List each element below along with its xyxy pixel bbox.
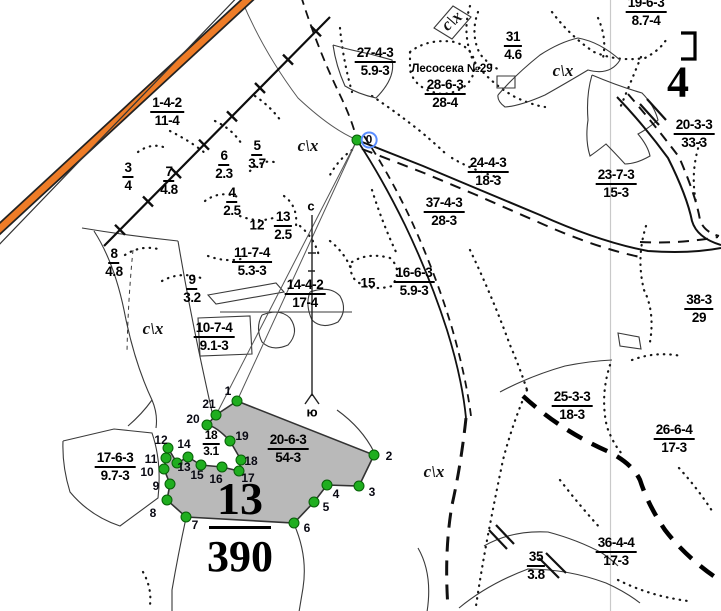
vertex-label-14: 14 [177,437,190,451]
vertex-label-0: 0 [361,132,378,149]
parcel-13-area-label: 13 390 [207,477,273,578]
lesoseka-label: Лесосека №29 [411,63,492,75]
vertex-dot-6[interactable] [289,518,300,529]
vertex-dot-10[interactable] [159,464,170,475]
vertex-dot-20[interactable] [202,420,213,431]
land-use-label: с\х [143,319,164,339]
parcel-label: 28-6-328-4 [425,77,466,110]
vertex-dot-2[interactable] [369,450,380,461]
parcel-area: 390 [207,536,273,578]
parcel-label: 25-3-318-3 [552,389,593,422]
parcel-label: 27-4-35.9-3 [355,45,396,78]
quarter-number-label: 4 [667,57,689,108]
compass-south-label: ю [306,405,317,420]
parcel-label: 14-4-217-4 [285,277,326,310]
parcel-label: 42.5 [223,185,241,218]
vertex-label-12: 12 [154,433,167,447]
vertex-dot-8[interactable] [162,495,173,506]
parcel-label: 62.3 [215,148,233,181]
parcel-label: 20-6-354-3 [268,432,309,465]
vertex-dot-1[interactable] [232,396,243,407]
parcel-label: 20-3-333-3 [674,117,715,150]
map-labels-layer: с ю 4 Лесосека №29 13 390 1-4-211-43474.… [0,0,721,611]
vertex-dot-4[interactable] [322,480,333,491]
land-use-label: с\х [553,61,574,81]
parcel-label: 24-4-318-3 [468,155,509,188]
vertex-label-18: 18 [244,454,257,468]
parcel-label: 53.7 [248,138,266,171]
land-use-label: с\х [298,136,319,156]
parcel-number-label: 12 [249,218,264,233]
vertex-label-15: 15 [190,468,203,482]
parcel-label: 38-329 [684,292,713,325]
parcel-label: 36-4-417-3 [596,535,637,568]
vertex-label-11: 11 [145,452,158,466]
vertex-dot-11[interactable] [161,453,172,464]
vertex-label-21: 21 [202,397,215,411]
compass-north-label: с [307,199,314,214]
parcel-label: 132.5 [274,209,292,242]
vertex-label-16: 16 [209,472,222,486]
parcel-label: 1-4-211-4 [150,95,184,128]
vertex-dot-7[interactable] [181,512,192,523]
parcel-label: 11-7-45.3-3 [232,245,272,278]
parcel-label: 23-7-315-3 [596,167,637,200]
parcel-label: 26-6-417-3 [654,422,695,455]
vertex-dot-5[interactable] [309,497,320,508]
parcel-label: 16-6-35.9-3 [394,265,435,298]
parcel-label: 183.1 [203,429,220,459]
fraction-bar [209,526,271,529]
vertex-label-1: 1 [225,384,232,398]
parcel-number-label: 15 [360,276,375,291]
vertex-label-17: 17 [241,471,254,485]
vertex-label-19: 19 [235,429,248,443]
vertex-dot-21[interactable] [211,410,222,421]
parcel-label: 17-6-39.7-3 [95,450,136,483]
vertex-label-10: 10 [140,465,153,479]
vertex-label-3: 3 [369,485,376,499]
parcel-label: 84.8 [105,246,123,279]
vertex-label-4: 4 [333,487,340,501]
vertex-dot-9[interactable] [165,479,176,490]
vertex-dot-14[interactable] [183,452,194,463]
parcel-label: 314.6 [504,29,522,62]
vertex-label-9: 9 [153,479,160,493]
parcel-label: 37-4-328-3 [424,195,465,228]
parcel-label: 74.8 [160,164,178,197]
land-use-label: с\х [438,7,467,36]
vertex-label-8: 8 [150,506,157,520]
vertex-label-6: 6 [304,521,311,535]
vertex-dot-16[interactable] [217,462,228,473]
vertex-dot-19[interactable] [225,436,236,447]
parcel-label: 34 [122,160,133,193]
land-use-label: с\х [424,462,445,482]
forestry-survey-map: с ю 4 Лесосека №29 13 390 1-4-211-43474.… [0,0,721,611]
parcel-label: 93.2 [183,272,201,305]
vertex-label-7: 7 [192,518,199,532]
parcel-label: 353.8 [527,549,545,582]
vertex-label-5: 5 [323,500,330,514]
parcel-label: 10-7-49.1-3 [194,320,235,353]
vertex-label-20: 20 [186,412,199,426]
parcel-label: 19-6-38.7-4 [626,0,667,28]
vertex-dot-3[interactable] [354,481,365,492]
vertex-label-2: 2 [386,449,393,463]
